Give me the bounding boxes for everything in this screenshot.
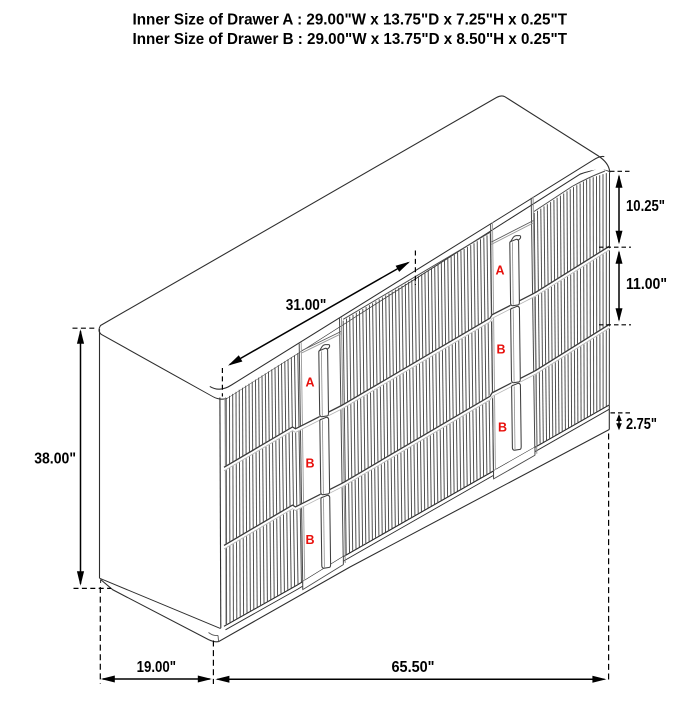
svg-text:A: A xyxy=(305,375,314,389)
svg-text:10.25": 10.25" xyxy=(626,198,665,215)
svg-text:38.00": 38.00" xyxy=(34,451,76,468)
svg-text:Inner Size of Drawer A : 29.00: Inner Size of Drawer A : 29.00"W x 13.75… xyxy=(133,11,568,28)
svg-text:65.50": 65.50" xyxy=(392,659,435,676)
svg-text:A: A xyxy=(495,263,504,277)
svg-text:19.00": 19.00" xyxy=(137,659,176,676)
svg-text:Inner Size of Drawer B : 29.00: Inner Size of Drawer B : 29.00"W x 13.75… xyxy=(133,31,568,48)
svg-text:31.00": 31.00" xyxy=(286,297,327,314)
svg-text:B: B xyxy=(305,533,314,547)
svg-text:B: B xyxy=(496,342,505,356)
svg-text:B: B xyxy=(498,420,507,434)
svg-text:B: B xyxy=(305,456,314,470)
svg-text:11.00": 11.00" xyxy=(626,276,667,293)
svg-text:2.75": 2.75" xyxy=(626,416,657,433)
